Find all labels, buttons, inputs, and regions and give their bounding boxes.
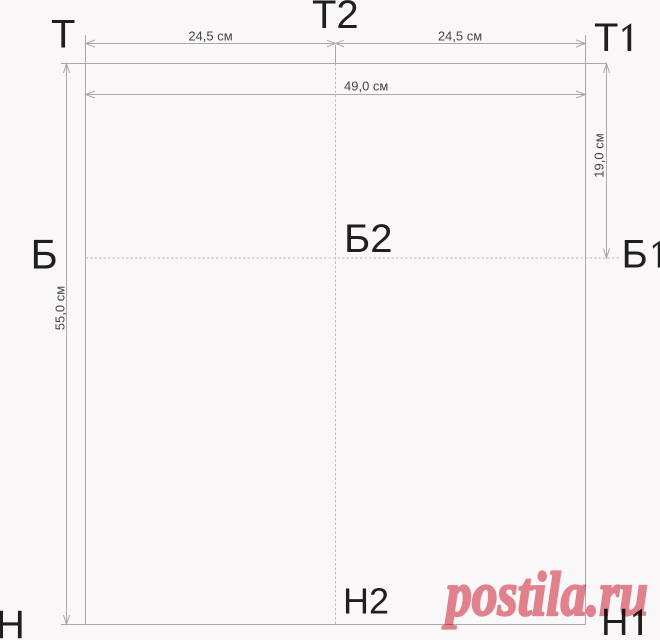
svg-text:Б2: Б2 — [344, 217, 393, 261]
svg-text:49,0 см: 49,0 см — [344, 79, 388, 94]
svg-text:Н: Н — [0, 603, 25, 640]
svg-text:Б: Б — [31, 231, 58, 278]
svg-text:24,5 см: 24,5 см — [188, 29, 232, 44]
svg-text:Б: Б — [622, 233, 648, 277]
svg-text:24,5 см: 24,5 см — [438, 29, 482, 44]
svg-text:postila.ru: postila.ru — [442, 561, 648, 629]
svg-text:Т: Т — [594, 16, 618, 60]
svg-text:Н2: Н2 — [343, 581, 389, 622]
svg-text:Т: Т — [51, 13, 75, 57]
svg-text:Т2: Т2 — [312, 0, 359, 37]
svg-text:19,0 см: 19,0 см — [592, 133, 607, 177]
svg-text:55,0 см: 55,0 см — [53, 286, 68, 330]
